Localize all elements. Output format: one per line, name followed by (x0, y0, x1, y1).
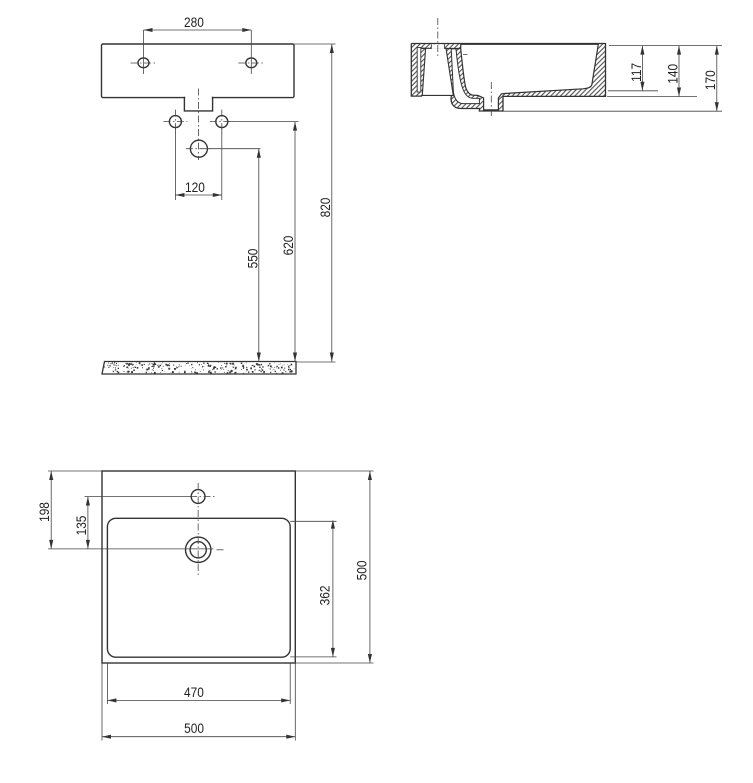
svg-text:135: 135 (73, 516, 89, 536)
svg-text:140: 140 (664, 64, 680, 84)
svg-text:170: 170 (702, 70, 718, 90)
svg-text:500: 500 (353, 560, 369, 580)
svg-text:470: 470 (184, 684, 204, 700)
svg-text:117: 117 (628, 63, 644, 82)
svg-text:362: 362 (317, 585, 333, 605)
svg-text:198: 198 (36, 502, 52, 522)
svg-text:280: 280 (184, 14, 204, 30)
svg-text:500: 500 (184, 720, 204, 736)
svg-text:820: 820 (317, 198, 333, 218)
svg-text:620: 620 (280, 236, 296, 256)
svg-text:120: 120 (185, 179, 205, 195)
svg-text:550: 550 (245, 249, 261, 269)
